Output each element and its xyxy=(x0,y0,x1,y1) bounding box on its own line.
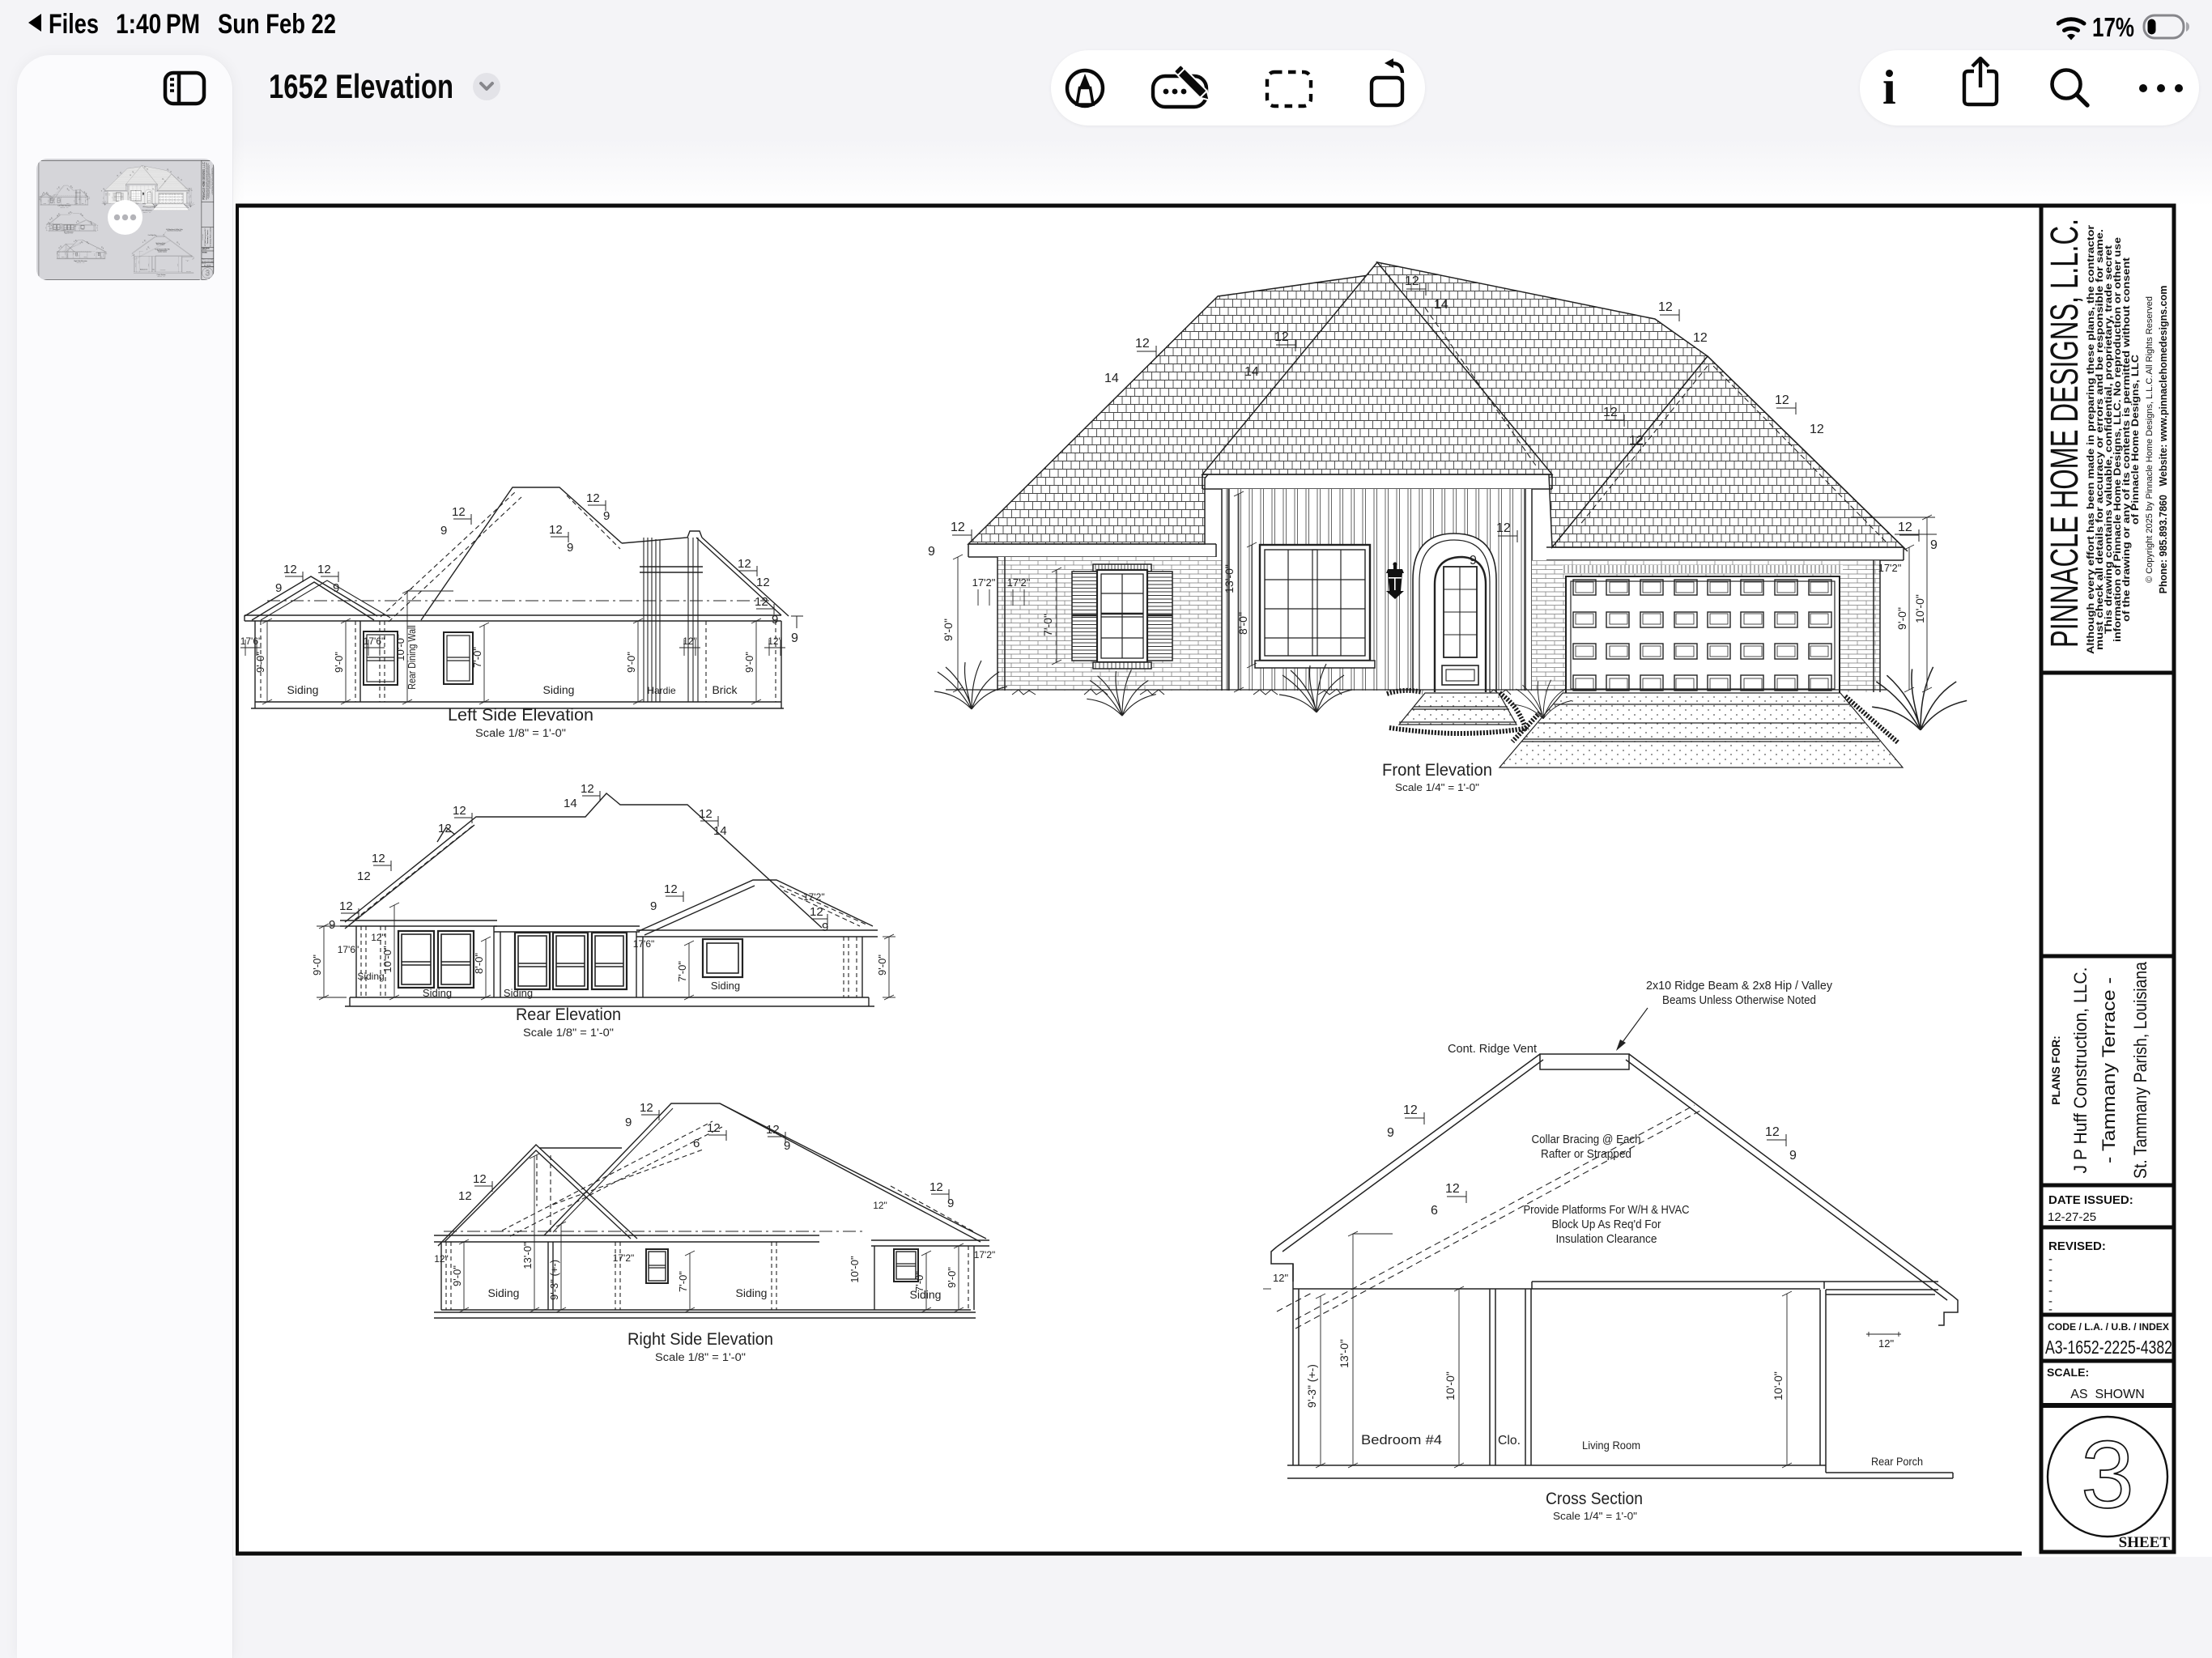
svg-text:12: 12 xyxy=(1135,337,1150,351)
svg-text:12: 12 xyxy=(766,1123,780,1137)
svg-text:12: 12 xyxy=(810,905,823,919)
svg-text:8'-0": 8'-0" xyxy=(1236,612,1249,635)
svg-text:9: 9 xyxy=(1387,1126,1394,1140)
svg-text:12": 12" xyxy=(434,1253,449,1265)
svg-text:Siding: Siding xyxy=(423,987,452,999)
svg-text:17'2": 17'2" xyxy=(803,891,825,903)
svg-text:9: 9 xyxy=(791,631,798,645)
svg-text:9: 9 xyxy=(603,509,610,523)
svg-text:12: 12 xyxy=(756,576,770,589)
svg-text:Scale 1/8" = 1'-0": Scale 1/8" = 1'-0" xyxy=(655,1351,746,1363)
svg-text:12: 12 xyxy=(1445,1182,1460,1196)
svg-text:9'-0": 9'-0" xyxy=(743,652,755,673)
svg-text:12: 12 xyxy=(357,869,371,883)
svg-text:12: 12 xyxy=(452,505,466,519)
svg-text:9: 9 xyxy=(1930,538,1938,552)
svg-text:17'2": 17'2" xyxy=(1878,562,1902,574)
svg-text:9: 9 xyxy=(333,581,339,595)
svg-text:7'-0": 7'-0" xyxy=(676,961,688,982)
svg-text:Collar Bracing @ Each: Collar Bracing @ Each xyxy=(1532,1133,1641,1146)
svg-text:10'-0": 10'-0" xyxy=(1913,594,1926,623)
svg-text:Left Side Elevation: Left Side Elevation xyxy=(448,706,593,725)
svg-text:AS SHOWN: AS SHOWN xyxy=(2070,1388,2145,1401)
svg-text:13'-0": 13'-0" xyxy=(521,1242,534,1269)
svg-text:Rear Dining Wall: Rear Dining Wall xyxy=(406,625,418,690)
svg-text:17'2": 17'2" xyxy=(1007,576,1031,589)
svg-text:12": 12" xyxy=(683,636,697,647)
svg-text:12: 12 xyxy=(283,563,297,576)
svg-text:9'-0": 9'-0" xyxy=(946,1267,958,1288)
svg-text:SHEET: SHEET xyxy=(2119,1534,2171,1551)
svg-text:12: 12 xyxy=(1765,1125,1780,1139)
svg-text:Siding: Siding xyxy=(736,1286,768,1299)
svg-text:14: 14 xyxy=(713,824,727,838)
svg-text:12: 12 xyxy=(586,491,600,505)
svg-text:PLANS FOR:: PLANS FOR: xyxy=(2049,1035,2062,1105)
svg-text:12: 12 xyxy=(473,1172,487,1186)
svg-text:12: 12 xyxy=(1274,330,1289,344)
svg-text:9'-0": 9'-0" xyxy=(254,652,266,673)
svg-text:Brick: Brick xyxy=(712,683,738,696)
svg-text:12: 12 xyxy=(1775,393,1789,407)
svg-text:St. Tammany Parish, Louisiana: St. Tammany Parish, Louisiana xyxy=(2130,961,2150,1179)
svg-text:9: 9 xyxy=(1470,554,1477,568)
svg-text:14: 14 xyxy=(1434,298,1448,312)
svg-text:12: 12 xyxy=(372,852,385,865)
svg-text:Scale 1/8" = 1'-0": Scale 1/8" = 1'-0" xyxy=(523,1027,614,1039)
svg-text:9'-0": 9'-0" xyxy=(942,619,955,641)
svg-text:Provide Platforms For W/H & HV: Provide Platforms For W/H & HVAC xyxy=(1524,1203,1690,1217)
svg-text:9: 9 xyxy=(784,1139,790,1153)
svg-text:Insulation Clearance: Insulation Clearance xyxy=(1556,1232,1657,1246)
svg-text:12: 12 xyxy=(951,521,965,534)
svg-text:Hardie: Hardie xyxy=(647,685,676,696)
svg-text:17'2": 17'2" xyxy=(613,1252,635,1264)
svg-text:9: 9 xyxy=(928,545,935,559)
svg-text:12: 12 xyxy=(581,782,594,796)
svg-text:9'-3" (+-): 9'-3" (+-) xyxy=(1305,1364,1318,1408)
svg-text:12: 12 xyxy=(699,807,713,821)
svg-text:J P Huff Construction, LLC.: J P Huff Construction, LLC. xyxy=(2070,967,2091,1174)
svg-text:of Pinnacle Home Designs, LLC: of Pinnacle Home Designs, LLC xyxy=(2131,355,2141,525)
svg-text:9: 9 xyxy=(1789,1149,1797,1163)
svg-text:Living Room: Living Room xyxy=(1582,1439,1640,1452)
svg-text:14: 14 xyxy=(1104,372,1119,385)
svg-text:17'2": 17'2" xyxy=(972,576,996,589)
svg-text:12": 12" xyxy=(873,1200,887,1211)
svg-text:9: 9 xyxy=(947,1197,954,1210)
svg-text:2x10 Ridge Beam & 2x8 Hip / Va: 2x10 Ridge Beam & 2x8 Hip / Valley xyxy=(1646,979,1832,993)
svg-text:CODE / L.A. / U.B. / INDEX: CODE / L.A. / U.B. / INDEX xyxy=(2048,1321,2169,1333)
svg-text:Rear Porch: Rear Porch xyxy=(1871,1455,1923,1468)
svg-text:12: 12 xyxy=(317,563,331,576)
svg-text:12: 12 xyxy=(453,804,466,818)
svg-text:12: 12 xyxy=(1898,521,1912,534)
svg-text:10'-0": 10'-0" xyxy=(849,1256,861,1283)
svg-text:© Copyright 2025 by Pinnacle H: © Copyright 2025 by Pinnacle Home Design… xyxy=(2145,296,2155,583)
svg-text:12": 12" xyxy=(371,932,385,943)
svg-text:12: 12 xyxy=(1405,274,1419,288)
svg-text:10'-0": 10'-0" xyxy=(1444,1371,1457,1401)
svg-text:6: 6 xyxy=(1431,1204,1438,1218)
svg-text:SCALE:: SCALE: xyxy=(2047,1366,2089,1379)
svg-text:Rear Elevation: Rear Elevation xyxy=(516,1005,621,1024)
svg-text:7'-0": 7'-0" xyxy=(677,1271,689,1292)
svg-text:REVISED:: REVISED: xyxy=(2048,1239,2106,1253)
svg-text:Siding: Siding xyxy=(543,683,575,696)
svg-text:17'6": 17'6" xyxy=(240,636,262,647)
svg-text:14: 14 xyxy=(564,797,577,810)
svg-text:17'6": 17'6" xyxy=(364,636,385,647)
svg-text:12: 12 xyxy=(1629,434,1644,448)
svg-text:9: 9 xyxy=(440,524,447,538)
svg-text:Cross Section: Cross Section xyxy=(1546,1490,1643,1508)
svg-text:12: 12 xyxy=(929,1180,943,1194)
svg-text:A3-1652-2225-4382: A3-1652-2225-4382 xyxy=(2045,1337,2172,1358)
svg-text:12: 12 xyxy=(640,1101,653,1115)
svg-text:9: 9 xyxy=(650,899,657,913)
svg-text:7'-0": 7'-0" xyxy=(1041,614,1054,636)
svg-text:9'-0": 9'-0" xyxy=(625,652,637,673)
svg-text:9: 9 xyxy=(625,1116,632,1129)
svg-text:12: 12 xyxy=(738,557,751,571)
svg-text:12: 12 xyxy=(1403,1103,1418,1117)
svg-text:12: 12 xyxy=(549,523,563,537)
svg-text:13'-0": 13'-0" xyxy=(1223,564,1236,593)
svg-text:Scale 1/8" = 1'-0": Scale 1/8" = 1'-0" xyxy=(475,727,566,739)
svg-text:PINNACLE HOME DESIGNS, L.L.C.: PINNACLE HOME DESIGNS, L.L.C. xyxy=(2044,219,2087,648)
svg-text:- Tammany Terrace -: - Tammany Terrace - xyxy=(2099,977,2119,1163)
svg-text:12: 12 xyxy=(707,1121,721,1135)
svg-text:9: 9 xyxy=(567,541,573,555)
svg-text:9'-0": 9'-0" xyxy=(451,1265,463,1286)
svg-text:Right Side Elevation: Right Side Elevation xyxy=(627,1330,773,1349)
svg-text:Siding: Siding xyxy=(910,1288,942,1301)
svg-text:12": 12" xyxy=(1878,1337,1894,1350)
svg-text:9'-0": 9'-0" xyxy=(333,652,345,673)
svg-text:12: 12 xyxy=(1603,406,1618,419)
svg-text:Front Elevation: Front Elevation xyxy=(1382,761,1492,780)
svg-text:3: 3 xyxy=(2081,1422,2134,1528)
svg-text:Siding: Siding xyxy=(711,980,740,992)
svg-text:DATE ISSUED:: DATE ISSUED: xyxy=(2048,1193,2133,1207)
svg-text:9'-0": 9'-0" xyxy=(876,954,888,976)
svg-text:Scale 1/4" = 1'-0": Scale 1/4" = 1'-0" xyxy=(1395,781,1479,793)
svg-text:17'6": 17'6" xyxy=(338,944,359,955)
svg-text:Scale 1/4" = 1'-0": Scale 1/4" = 1'-0" xyxy=(1553,1510,1637,1522)
svg-text:9: 9 xyxy=(275,581,282,595)
svg-text:14: 14 xyxy=(1244,365,1259,379)
svg-text:9'-3" (+-): 9'-3" (+-) xyxy=(548,1260,560,1300)
svg-text:Block Up As Req'd For: Block Up As Req'd For xyxy=(1552,1218,1661,1231)
svg-text:10'-0": 10'-0" xyxy=(1772,1371,1784,1401)
svg-text:10'-0": 10'-0" xyxy=(381,946,393,973)
svg-text:Bedroom #4: Bedroom #4 xyxy=(1361,1432,1442,1448)
svg-text:12: 12 xyxy=(438,822,452,835)
svg-text:12-27-25: 12-27-25 xyxy=(2048,1210,2096,1224)
svg-text:-: - xyxy=(2048,1303,2052,1316)
svg-text:12: 12 xyxy=(755,595,768,609)
svg-text:12: 12 xyxy=(458,1189,472,1203)
svg-text:12": 12" xyxy=(1273,1272,1288,1284)
svg-text:12: 12 xyxy=(339,899,353,913)
svg-text:9'-0": 9'-0" xyxy=(311,954,323,976)
svg-text:9: 9 xyxy=(772,613,778,627)
svg-text:Beams Unless Otherwise Noted: Beams Unless Otherwise Noted xyxy=(1662,993,1816,1007)
svg-text:6: 6 xyxy=(693,1137,700,1150)
svg-text:Cont. Ridge Vent: Cont. Ridge Vent xyxy=(1448,1042,1538,1056)
svg-text:Phone: 985.893.7860 Website:: Phone: 985.893.7860 Website: www.pinnacl… xyxy=(2158,286,2169,594)
svg-text:Siding: Siding xyxy=(287,683,319,696)
svg-text:12": 12" xyxy=(768,636,782,647)
svg-text:Siding: Siding xyxy=(504,987,533,999)
svg-text:Siding: Siding xyxy=(357,971,384,982)
svg-text:8'-0": 8'-0" xyxy=(473,953,485,974)
svg-text:12: 12 xyxy=(664,882,678,896)
svg-text:Rafter or Strapped: Rafter or Strapped xyxy=(1541,1147,1631,1161)
svg-text:12: 12 xyxy=(1810,423,1824,436)
svg-text:12: 12 xyxy=(1496,521,1511,535)
svg-text:17'2": 17'2" xyxy=(974,1249,996,1261)
svg-text:7'-0": 7'-0" xyxy=(471,647,483,668)
svg-text:9: 9 xyxy=(329,918,335,932)
svg-text:13'-0": 13'-0" xyxy=(1338,1339,1351,1368)
svg-text:10'-0": 10'-0" xyxy=(394,634,406,661)
svg-text:Clo.: Clo. xyxy=(1498,1434,1521,1448)
svg-text:12: 12 xyxy=(1693,331,1708,345)
svg-text:12: 12 xyxy=(1658,300,1673,314)
svg-text:9'-0": 9'-0" xyxy=(1895,607,1908,630)
svg-text:17'6": 17'6" xyxy=(633,938,655,950)
svg-text:Siding: Siding xyxy=(488,1286,520,1299)
